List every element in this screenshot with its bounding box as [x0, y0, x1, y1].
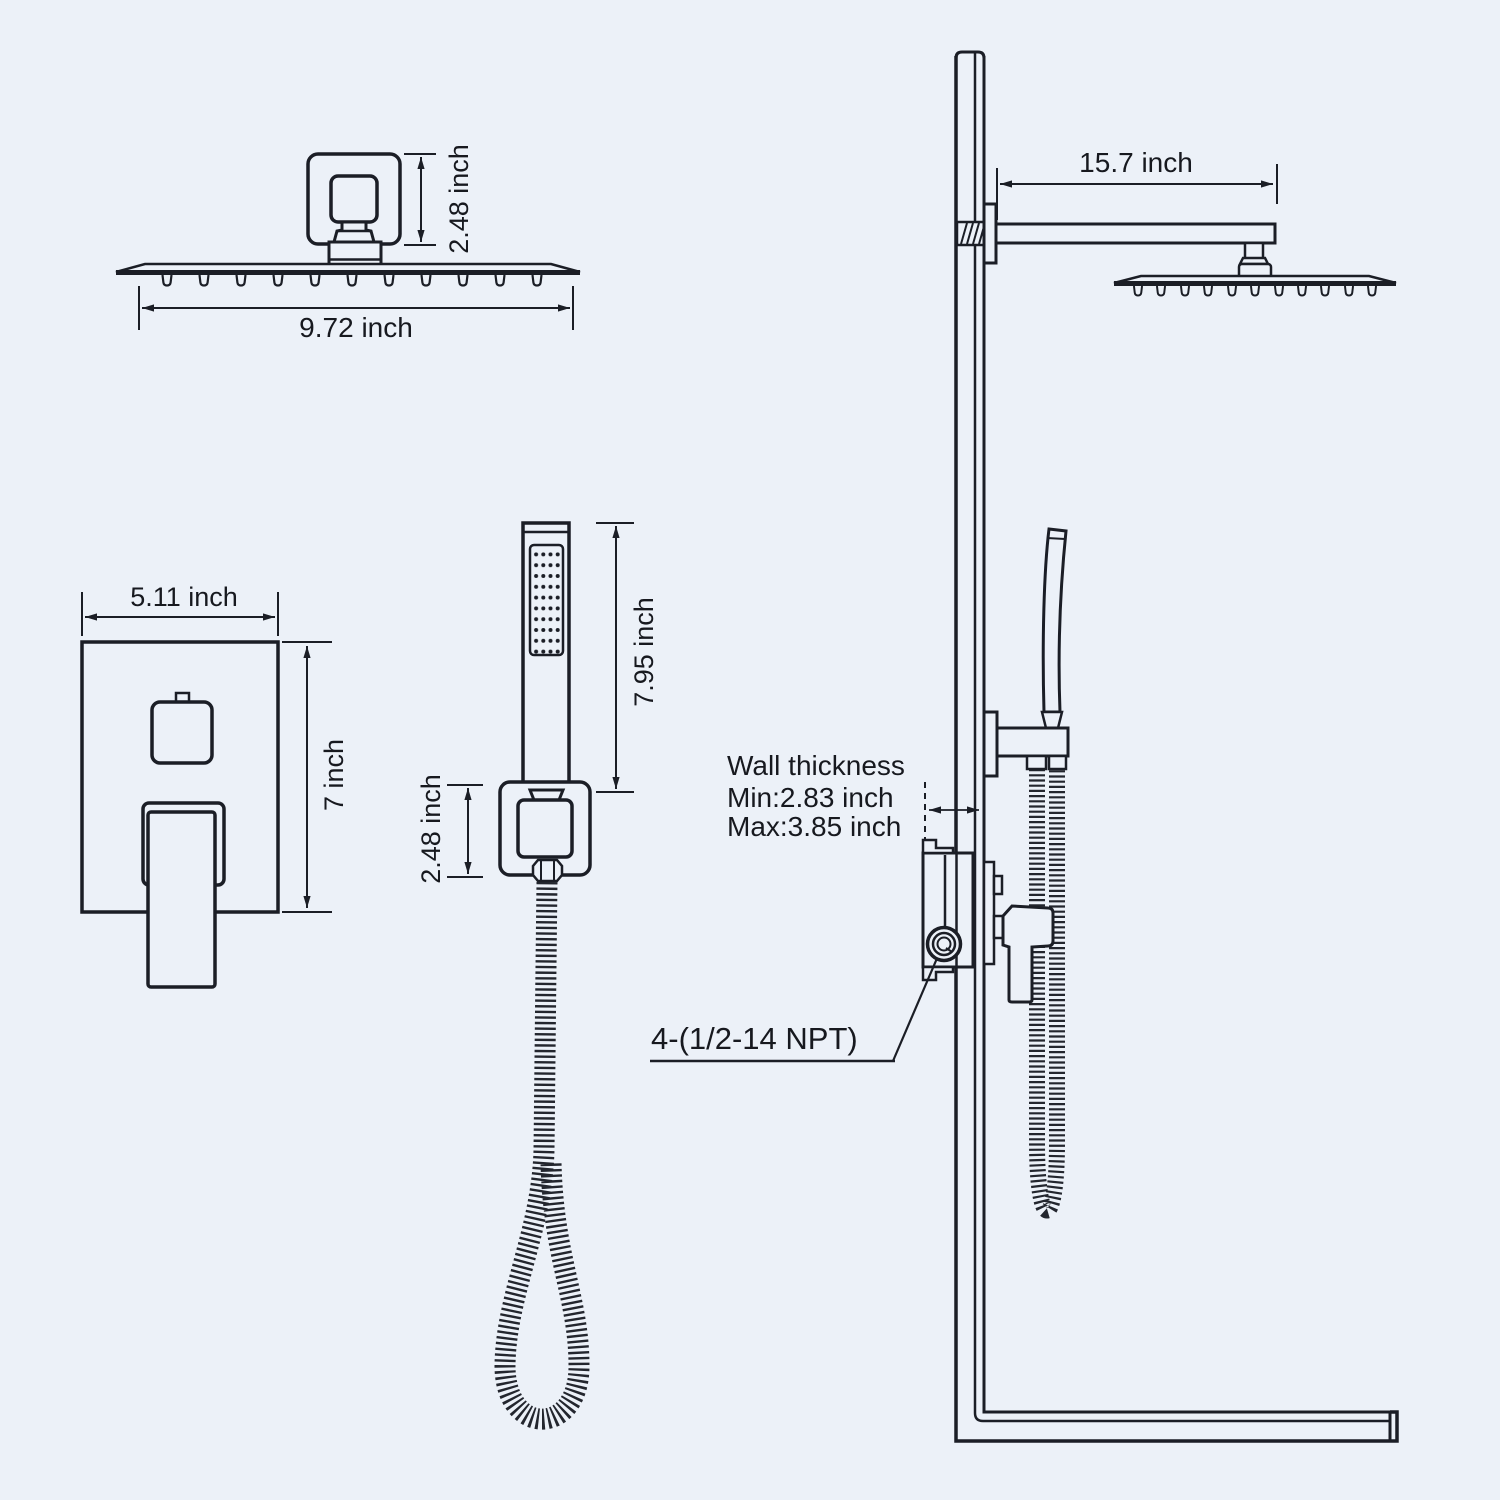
head-plate	[116, 264, 580, 273]
arm-flange	[984, 204, 996, 263]
diverter-button-side	[994, 876, 1002, 894]
dimension-handheld-length: 7.95 inch	[596, 523, 659, 792]
dimension-head-width: 9.72 inch	[139, 286, 573, 343]
handheld-shower-front-view: 7.95 inch 2.48 inch	[416, 523, 659, 1419]
holder-bracket-side	[997, 728, 1068, 756]
spray-face-dots	[533, 548, 562, 654]
assembly-side-view: 15.7 inch	[650, 52, 1397, 1441]
valve-width-label: 5.11 inch	[130, 582, 238, 612]
wall-thickness-min: Min:2.83 inch	[727, 782, 894, 813]
dimension-head-height: 2.48 inch	[404, 144, 474, 254]
valve-trim-front-view: 5.11 inch 7 inch	[82, 582, 349, 987]
handheld-side	[984, 529, 1068, 776]
shower-arm-side	[957, 204, 1275, 279]
shower-system-diagram: 2.48 inch 9.72 inch 5.11 inch	[0, 0, 1500, 1500]
rain-shower-head-front-view: 2.48 inch 9.72 inch	[116, 144, 580, 343]
dimension-valve-width: 5.11 inch	[82, 582, 278, 636]
handheld-wand-side	[1043, 529, 1066, 712]
wall-thickness-note: Wall thickness Min:2.83 inch Max:3.85 in…	[727, 750, 905, 842]
diverter-button	[152, 693, 212, 763]
head-width-label: 9.72 inch	[299, 312, 413, 343]
npt-label-text: 4-(1/2-14 NPT)	[651, 1021, 858, 1056]
head-mount-bracket	[308, 154, 400, 266]
npt-leader-line	[893, 949, 941, 1061]
handheld-hose	[505, 882, 579, 1419]
valve-height-label: 7 inch	[319, 739, 349, 811]
rain-head-side	[1114, 276, 1396, 295]
arm-length-label: 15.7 inch	[1079, 147, 1193, 178]
dimension-arm-length: 15.7 inch	[997, 147, 1277, 220]
wall-thickness-title: Wall thickness	[727, 750, 905, 781]
handheld-length-label: 7.95 inch	[629, 597, 659, 707]
wall-thickness-max: Max:3.85 inch	[727, 811, 901, 842]
mixer-lever	[143, 803, 224, 987]
npt-connection-label: 4-(1/2-14 NPT)	[650, 1021, 895, 1061]
hose-nut	[533, 860, 562, 881]
technical-drawing-page: 2.48 inch 9.72 inch 5.11 inch	[0, 0, 1500, 1500]
head-height-label: 2.48 inch	[444, 144, 474, 254]
spray-nozzles-side	[1134, 286, 1376, 295]
mixer-lever-side	[1003, 906, 1053, 1002]
npt-connection-port	[928, 928, 961, 961]
handheld-holder	[500, 782, 590, 881]
spray-nozzles	[163, 275, 542, 286]
dimension-holder-height: 2.48 inch	[416, 774, 483, 884]
handheld-wand	[523, 523, 569, 792]
dimension-valve-height: 7 inch	[282, 642, 349, 912]
in-wall-valve-body	[893, 782, 979, 1061]
arm-tube	[996, 224, 1275, 243]
valve-trim-side	[984, 862, 1053, 1002]
holder-wall-mount	[984, 712, 997, 776]
holder-height-label: 2.48 inch	[416, 774, 446, 884]
assembly-hose	[1037, 769, 1057, 1211]
